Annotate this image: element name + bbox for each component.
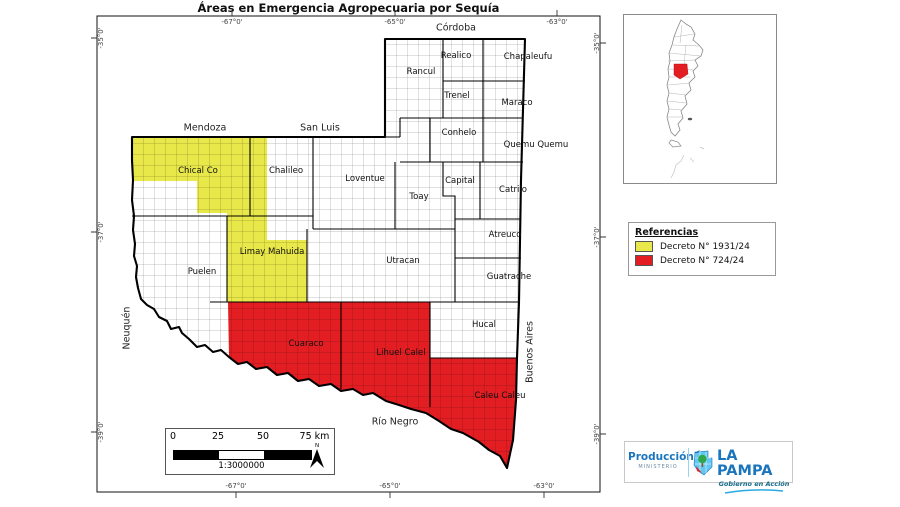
argentina-outline	[624, 15, 775, 182]
legend-item: Decreto N° 724/24	[635, 255, 775, 266]
north-arrow-icon: N	[308, 441, 326, 471]
scale-tick-1: 25	[212, 431, 224, 442]
legend-title: Referencias	[635, 227, 775, 238]
scale-ratio: 1:3000000	[173, 461, 310, 471]
legend-swatch-1	[635, 255, 653, 266]
north-arrow-label: N	[315, 443, 319, 449]
ministry-subtitle: MINISTERIO	[628, 464, 688, 470]
legend-items: Decreto N° 1931/24Decreto N° 724/24	[635, 241, 775, 266]
scale-bar-graphic	[173, 450, 312, 460]
brand-tagline: Gobierno en Acción	[717, 480, 791, 488]
legend-label-1: Decreto N° 724/24	[660, 256, 744, 266]
drought-emergency-map-page: Áreas en Emergencia Agropecuaria por Seq…	[0, 0, 900, 507]
ministry-name: Producción	[628, 451, 688, 463]
province-brand: LA PAMPA	[717, 449, 791, 479]
legend-swatch-0	[635, 241, 653, 252]
legend-item: Decreto N° 1931/24	[635, 241, 775, 252]
footer-logo: Producción MINISTERIO LA PAMPA Gobierno …	[624, 441, 793, 483]
logo-divider	[688, 448, 689, 477]
scale-bar: 0255075 km 1:3000000 N	[165, 428, 335, 475]
la-pampa-map-icon	[692, 449, 714, 477]
argentina-inset-map	[623, 14, 777, 184]
legend-box: Referencias Decreto N° 1931/24Decreto N°…	[628, 222, 776, 276]
legend-label-0: Decreto N° 1931/24	[660, 242, 750, 252]
swoosh-underline-icon	[723, 488, 785, 494]
scale-tick-2: 50	[257, 431, 269, 442]
scale-tick-0: 0	[170, 431, 176, 442]
